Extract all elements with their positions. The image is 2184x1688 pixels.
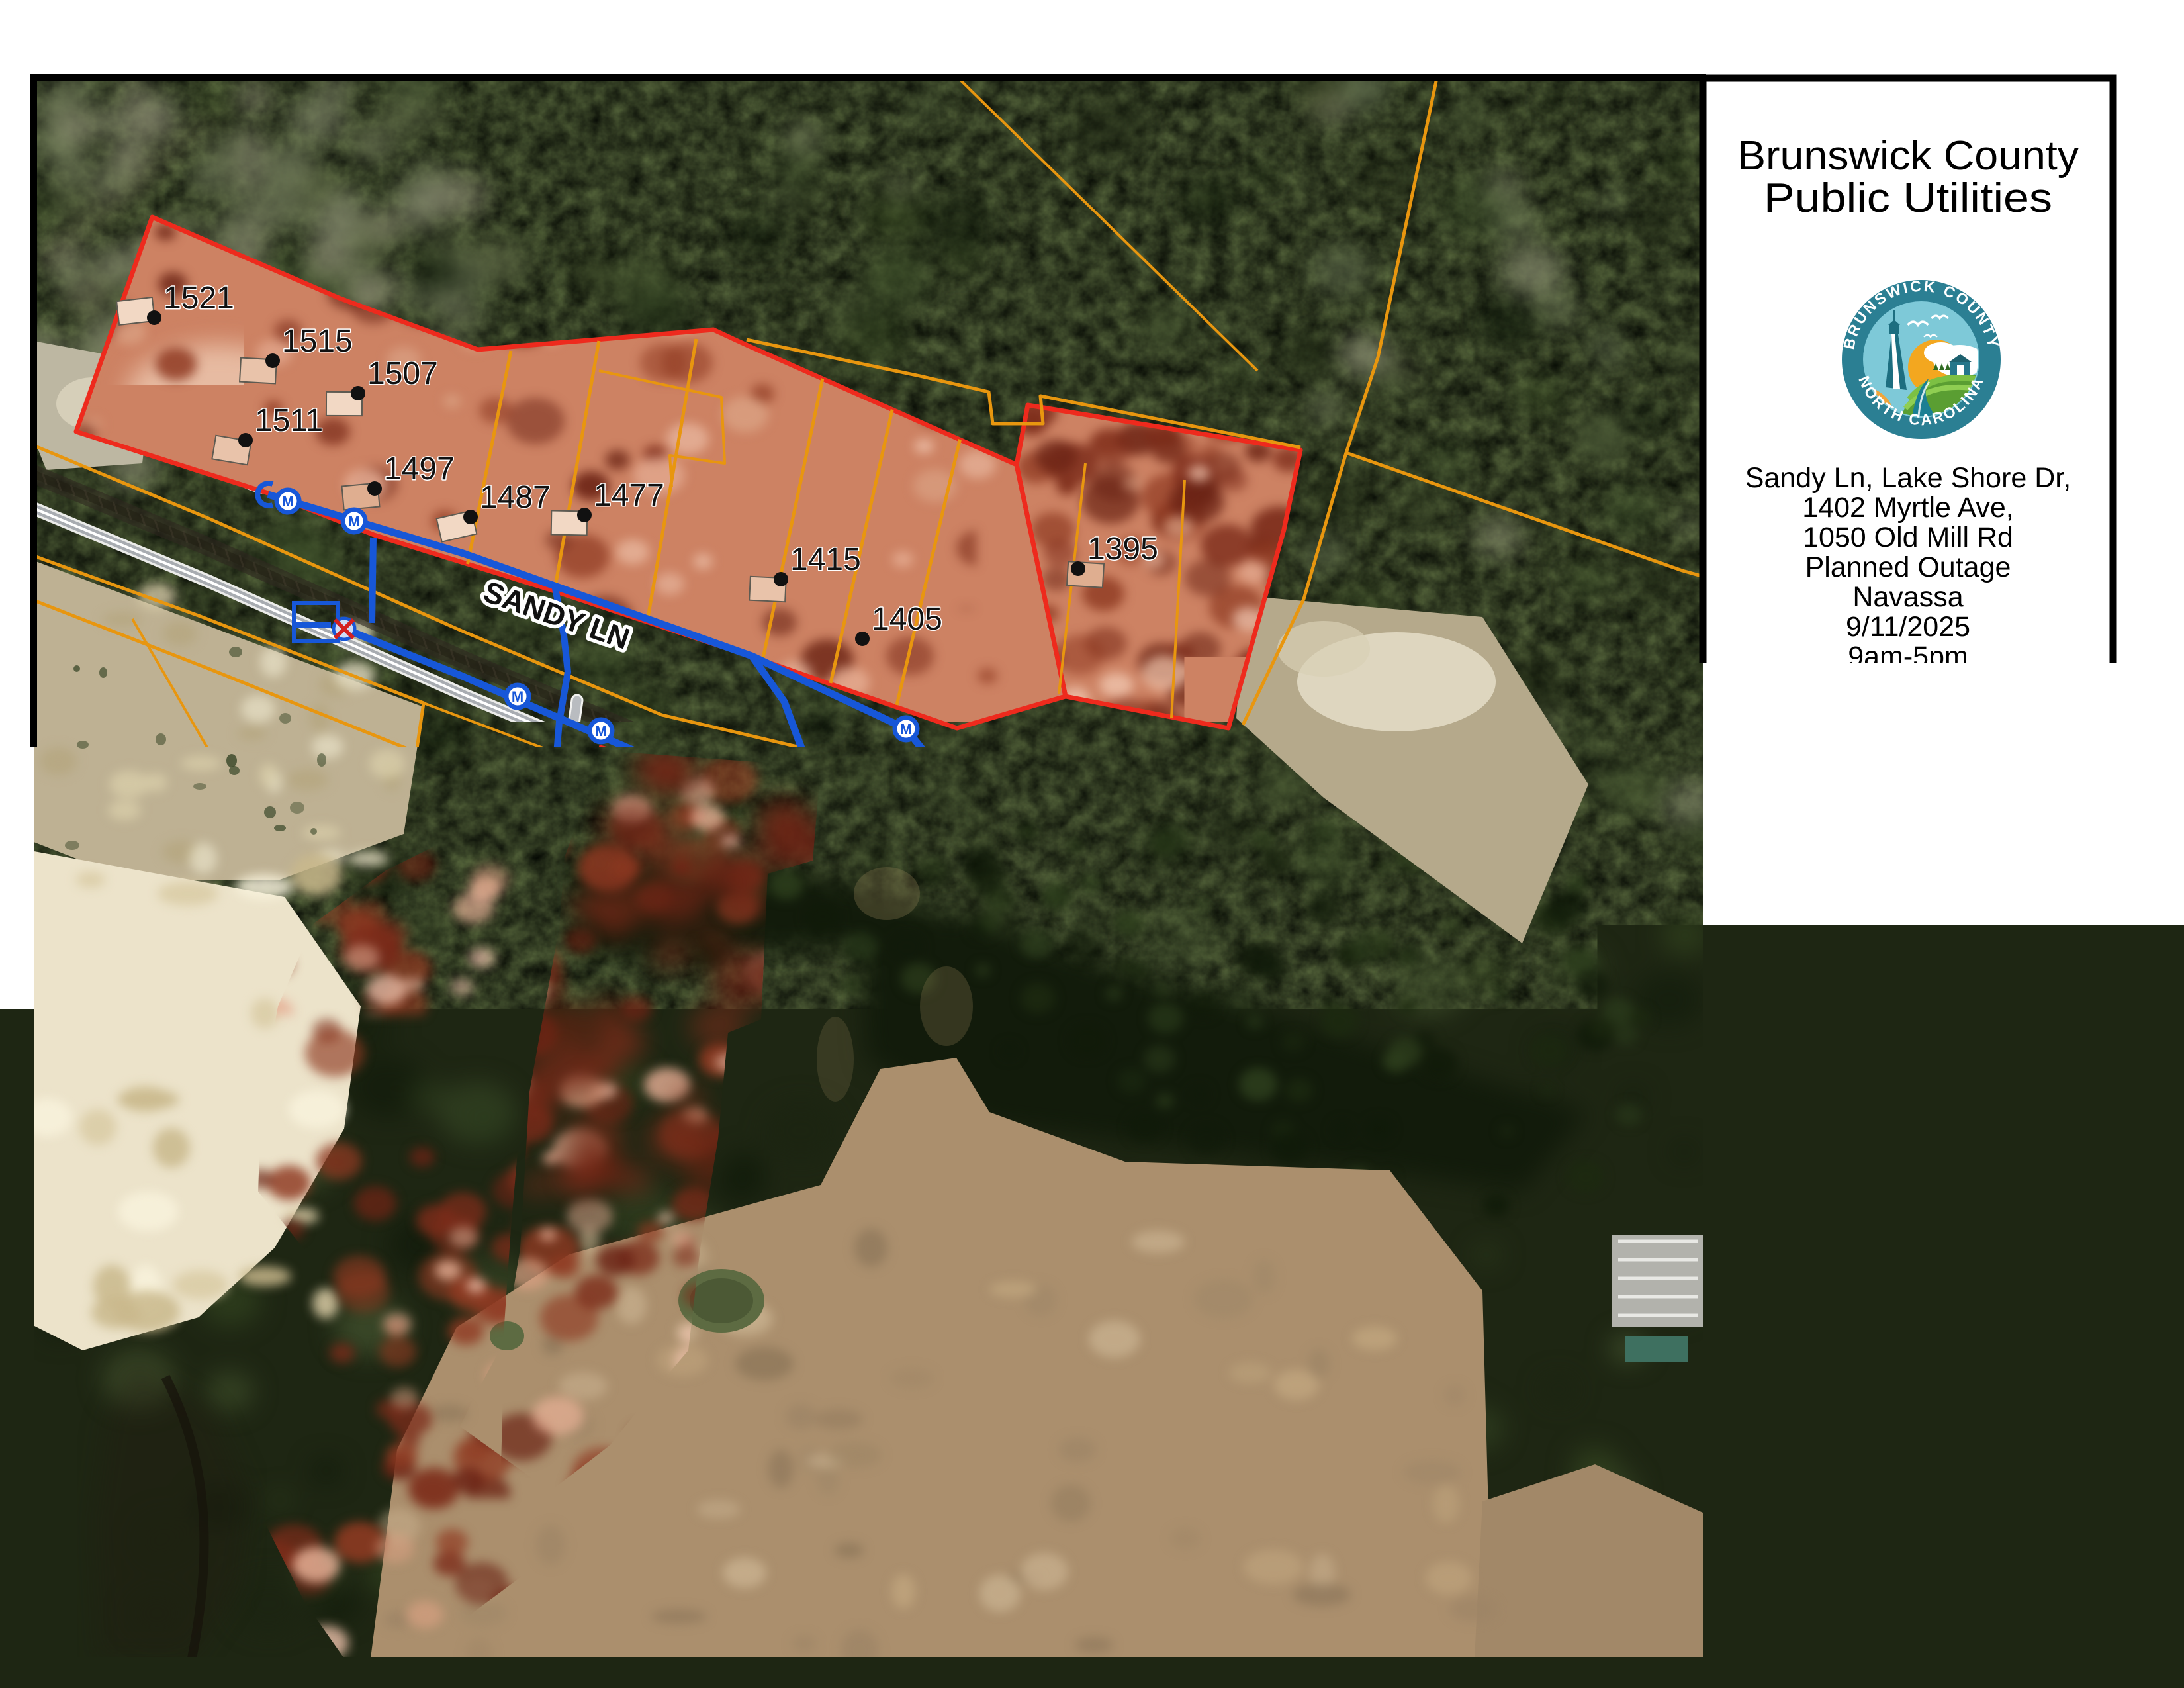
svg-text:M: M — [503, 1259, 514, 1274]
svg-text:M: M — [739, 788, 751, 804]
svg-text:information contained on this: information contained on this map. — [1741, 1446, 2075, 1470]
svg-text:M: M — [749, 1488, 760, 1503]
svg-text:1016: 1016 — [510, 1421, 580, 1456]
svg-text:System Pressure Advisory: System Pressure Advisory — [1795, 811, 2019, 832]
svg-text:Feet: Feet — [2026, 921, 2090, 957]
svg-text:verify data accuracy. Grid ba: verify data accuracy. Grid based on NC — [1711, 1587, 2105, 1612]
svg-text:1014: 1014 — [556, 1380, 627, 1415]
svg-text:1402 Myrtle Ave,: 1402 Myrtle Ave, — [1802, 492, 2014, 524]
svg-text:Brunswick County assumes no le: Brunswick County assumes no legal — [1733, 1376, 2083, 1400]
svg-text:verified by recipient. The us: verified by recipient. The user(s) shoul… — [1711, 1517, 2105, 1541]
svg-text:1012: 1012 — [579, 1309, 650, 1344]
svg-text:M: M — [517, 1099, 529, 1115]
svg-text:1497: 1497 — [384, 451, 455, 487]
svg-text:Brunswick County: Brunswick County — [1737, 133, 2079, 179]
svg-text:N: N — [1909, 1192, 1929, 1222]
svg-text:M: M — [1087, 1582, 1098, 1597]
svg-text:1011: 1011 — [411, 1127, 479, 1162]
svg-text:1009: 1009 — [421, 1062, 492, 1098]
svg-text:W: W — [1839, 1227, 1865, 1257]
svg-text:M: M — [488, 1627, 500, 1642]
svg-text:CIR: CIR — [94, 951, 123, 994]
svg-text:M: M — [1084, 1536, 1095, 1550]
svg-text:M: M — [508, 1589, 520, 1603]
svg-text:contents of or accuracy of any: contents of or accuracy of any — [1762, 1423, 2054, 1447]
svg-text:M: M — [305, 995, 317, 1011]
svg-text:1395: 1395 — [1087, 532, 1158, 567]
svg-text:1521: 1521 — [163, 281, 234, 316]
svg-text:M: M — [614, 1506, 625, 1521]
svg-text:M: M — [1537, 1458, 1548, 1472]
svg-text:1402: 1402 — [623, 1103, 694, 1139]
svg-text:250: 250 — [1854, 883, 1901, 914]
svg-text:M: M — [348, 513, 360, 530]
svg-text:1015: 1015 — [388, 1361, 459, 1396]
svg-text:1007: 1007 — [425, 982, 496, 1017]
svg-text:1507: 1507 — [367, 356, 438, 391]
svg-text:1004: 1004 — [608, 953, 678, 988]
svg-text:Planned Outage: Planned Outage — [1805, 551, 2011, 583]
svg-text:M: M — [1080, 1483, 1091, 1497]
svg-text:1005: 1005 — [388, 890, 459, 925]
svg-text:M: M — [900, 721, 912, 737]
svg-text:9/11/2025: 9/11/2025 — [1846, 611, 1970, 643]
svg-text:M: M — [282, 493, 294, 510]
svg-text:MYRTLE AVE: MYRTLE AVE — [509, 1208, 677, 1240]
svg-text:500: 500 — [1996, 883, 2042, 914]
svg-text:Addresses: Addresses — [1816, 779, 1907, 800]
svg-text:1003: 1003 — [497, 837, 568, 872]
svg-text:1415: 1415 — [790, 542, 861, 577]
svg-text:M: M — [657, 1497, 668, 1512]
svg-text:such as recorded deeds and pla: such as recorded deeds and plats to — [1732, 1564, 2084, 1588]
svg-text:1006: 1006 — [551, 1047, 621, 1082]
svg-text:Sandy Ln, Lake Shore Dr,: Sandy Ln, Lake Shore Dr, — [1745, 462, 2071, 494]
svg-text:375: 375 — [1925, 883, 1972, 914]
svg-text:1487: 1487 — [480, 480, 551, 515]
svg-text:M: M — [1506, 1472, 1518, 1487]
svg-text:M: M — [595, 723, 607, 739]
svg-text:9am-5pm: 9am-5pm — [1848, 641, 1968, 673]
svg-text:Legend: Legend — [1855, 718, 1973, 755]
svg-text:consult primary information so: consult primary information sources — [1736, 1540, 2081, 1564]
svg-text:S: S — [1878, 1295, 1893, 1325]
svg-text:E: E — [1942, 1259, 1960, 1289]
svg-text:State Plane Coordinates, NAD 8: State Plane Coordinates, NAD 83 Datum, F… — [1711, 1611, 2105, 1635]
svg-text:M: M — [512, 688, 523, 705]
svg-text:M: M — [383, 1205, 394, 1222]
svg-text:1050: 1050 — [1572, 823, 1643, 859]
svg-text:M: M — [455, 1418, 466, 1432]
svg-text:1017: 1017 — [330, 1429, 400, 1464]
svg-text:1050 Old Mill Rd: 1050 Old Mill Rd — [1803, 522, 2013, 553]
svg-text:1515: 1515 — [282, 324, 353, 359]
svg-text:M: M — [537, 1549, 549, 1564]
svg-text:M: M — [1388, 1311, 1400, 1325]
svg-text:1405: 1405 — [872, 602, 942, 637]
svg-text:1002: 1002 — [749, 818, 819, 853]
svg-text:M: M — [457, 1028, 469, 1045]
svg-text:1005: 1005 — [499, 915, 570, 951]
svg-text:125: 125 — [1757, 883, 1803, 914]
svg-text:This map may not be accurate o: This map may not be accurate or up — [1733, 1470, 2083, 1494]
svg-text:Public Utilities: Public Utilities — [1764, 175, 2052, 221]
svg-text:Navassa: Navassa — [1852, 581, 1963, 613]
svg-text:M: M — [574, 1524, 586, 1538]
svg-text:M: M — [1088, 1628, 1099, 1643]
svg-text:1477: 1477 — [594, 478, 664, 513]
svg-text:1511: 1511 — [255, 403, 323, 438]
svg-text:1010: 1010 — [571, 1243, 642, 1278]
svg-text:to date. All map information: to date. All map information must be — [1711, 1493, 2105, 1518]
svg-text:M: M — [1670, 1575, 1682, 1590]
svg-text:responsibility for the nature: responsibility for the nature of, — [1762, 1399, 2054, 1424]
svg-text:FANNER: FANNER — [58, 923, 91, 1022]
svg-text:M: M — [702, 1492, 713, 1507]
